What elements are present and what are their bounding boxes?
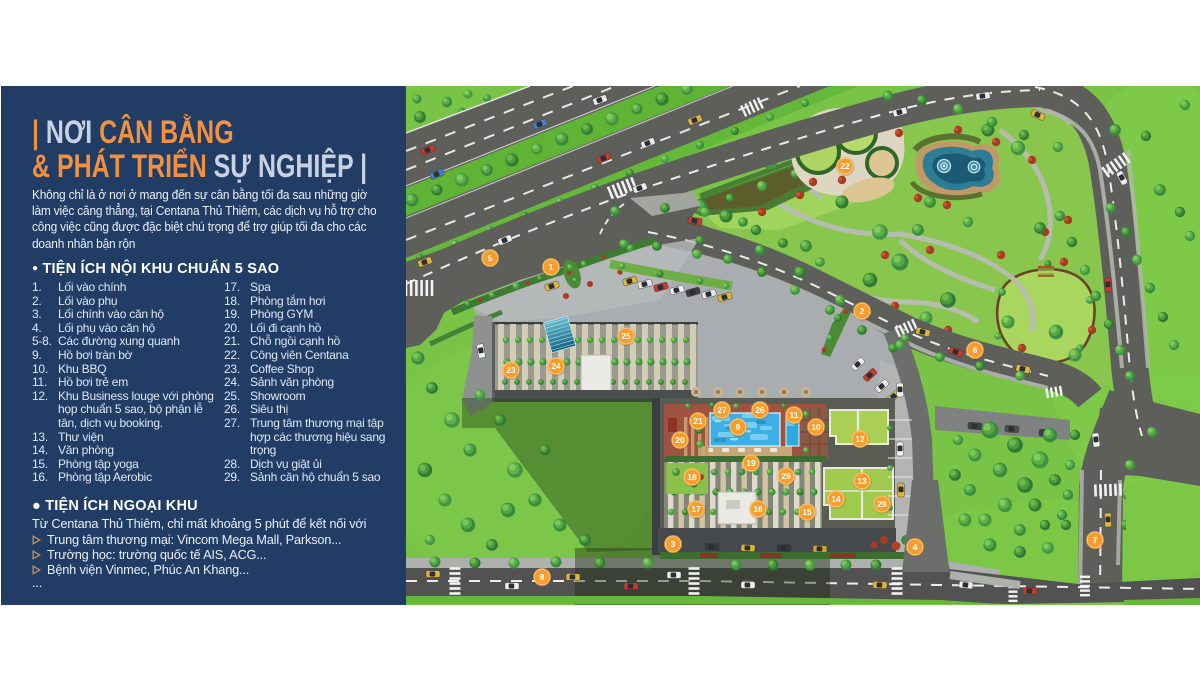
svg-text:3: 3 [671,539,676,549]
svg-text:26: 26 [755,405,765,415]
svg-text:9: 9 [736,422,741,432]
svg-text:6: 6 [973,345,978,355]
svg-text:7: 7 [1093,535,1098,545]
svg-text:25: 25 [621,331,631,341]
svg-text:16: 16 [753,504,763,514]
svg-text:17: 17 [691,504,701,514]
svg-text:15: 15 [802,507,812,517]
svg-text:29: 29 [781,471,791,481]
svg-text:5: 5 [488,253,493,263]
svg-text:23: 23 [506,365,516,375]
svg-text:11: 11 [790,410,799,420]
svg-text:18: 18 [687,472,697,482]
svg-text:13: 13 [857,476,867,486]
svg-text:12: 12 [855,434,865,444]
svg-text:22: 22 [840,161,850,171]
svg-text:4: 4 [913,542,918,552]
svg-text:20: 20 [675,435,685,445]
svg-text:28: 28 [877,499,887,509]
svg-text:21: 21 [693,416,703,426]
svg-text:19: 19 [746,458,756,468]
svg-text:24: 24 [551,361,561,371]
svg-text:27: 27 [717,405,727,415]
svg-text:10: 10 [811,422,821,432]
svg-text:8: 8 [540,572,545,582]
svg-text:1: 1 [549,262,554,272]
svg-text:2: 2 [860,306,865,316]
svg-text:14: 14 [831,494,841,504]
